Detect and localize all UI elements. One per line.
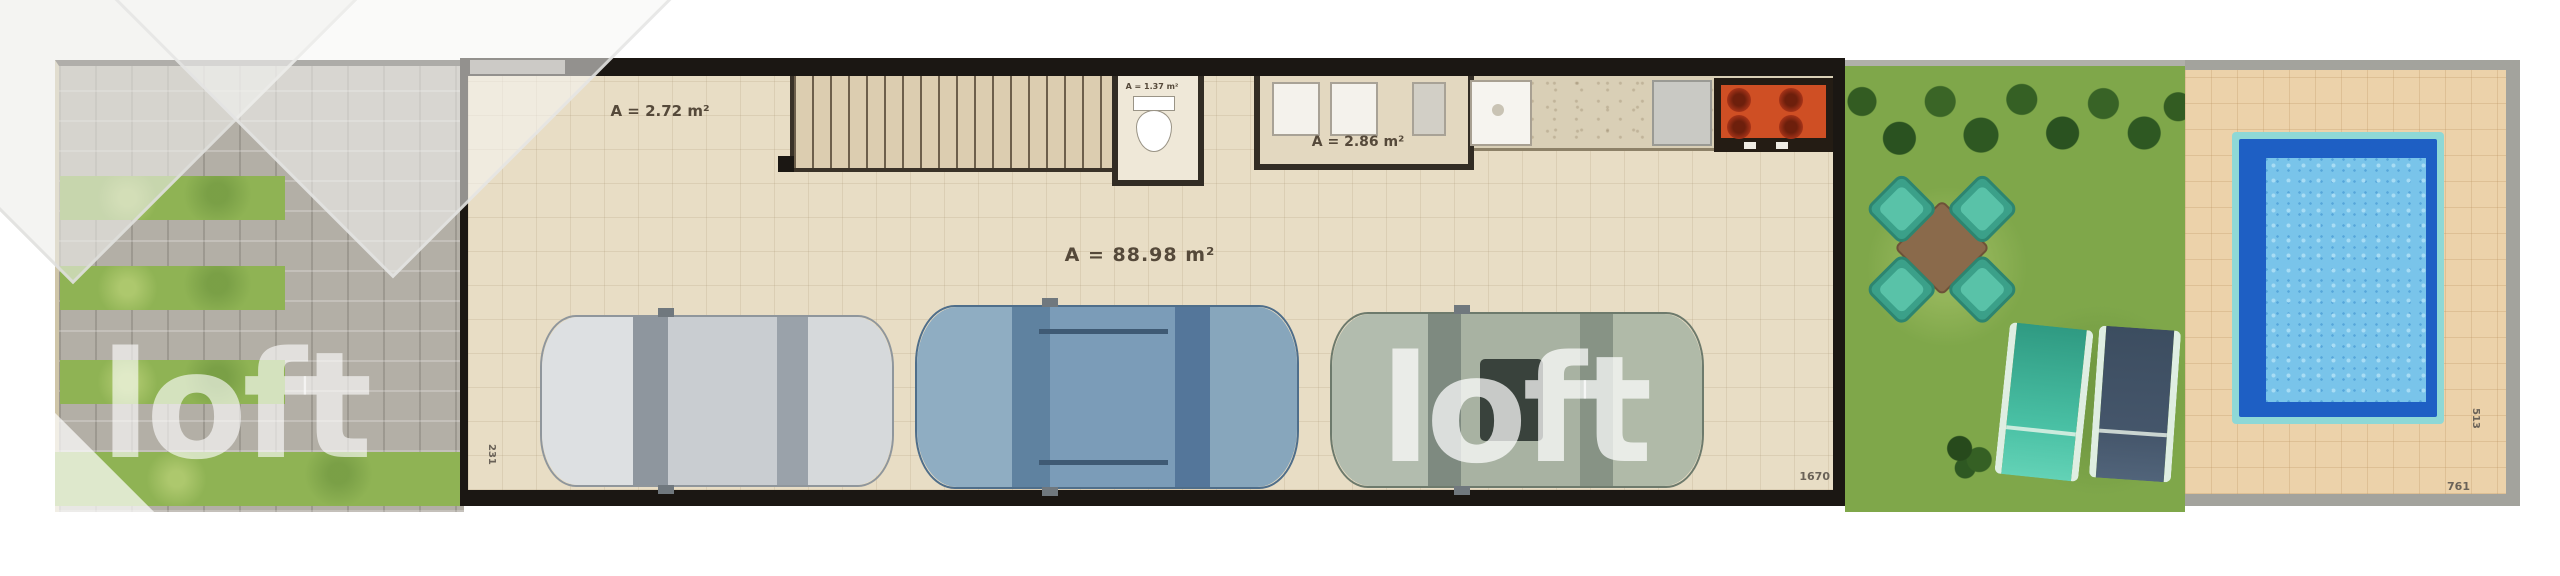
cabinet-icon [1412,82,1446,136]
hall-area-label: A = 2.72 m² [540,102,780,120]
car-mirror-icon [658,485,674,494]
car-silver [540,315,894,487]
swimming-pool [2232,132,2444,424]
cabinet-icon [1330,82,1378,136]
stove-top [1721,85,1826,138]
dimension-garage-length: 1670 [1772,470,1830,483]
car-mirror-icon [658,308,674,317]
sun-lounger-navy [2089,325,2181,482]
hedge [1845,70,2185,175]
car-mirror-icon [1454,305,1470,314]
car-mirror-icon [1042,487,1058,496]
wall-right [1833,58,1845,506]
loft-watermark: loft [1380,336,1648,484]
burner-icon [1779,115,1803,139]
stove-knob [1776,142,1788,149]
roof-rail-icon [1039,460,1168,465]
roof-rail-icon [1039,329,1168,334]
dimension-pool-width: 761 [2412,480,2470,493]
loft-watermark: loft [100,332,368,480]
burner-icon [1727,115,1751,139]
toilet-icon [1133,96,1175,111]
staircase [790,76,1120,172]
dimension-garage-door: 231 [486,444,497,465]
car-blue-suv [915,305,1299,489]
stove-icon [1714,78,1833,152]
burner-icon [1779,88,1803,112]
grass-strip [60,266,285,310]
garage-area-label: A = 88.98 m² [1010,244,1270,266]
sun-lounger-teal [1994,322,2093,482]
dimension-pool-height: 513 [2470,408,2481,429]
stove-knob [1744,142,1756,149]
utility-room [1254,76,1474,170]
wall-top [460,58,1845,76]
pool-water [2266,158,2426,402]
appliance-icon [1652,80,1712,146]
car-body [542,317,892,485]
shrub-icon [1940,426,1996,482]
utility-area-label: A = 2.86 m² [1254,134,1462,150]
burner-icon [1727,88,1751,112]
cabinet-icon [1272,82,1320,136]
sink-drain-icon [1492,104,1504,116]
floor-plan: A = 2.72 m² A = 1.37 m² A = 2.86 m² A = … [0,0,2560,576]
staircase-start [778,156,794,172]
wc-area-label: A = 1.37 m² [1114,82,1190,91]
car-mirror-icon [1042,298,1058,307]
